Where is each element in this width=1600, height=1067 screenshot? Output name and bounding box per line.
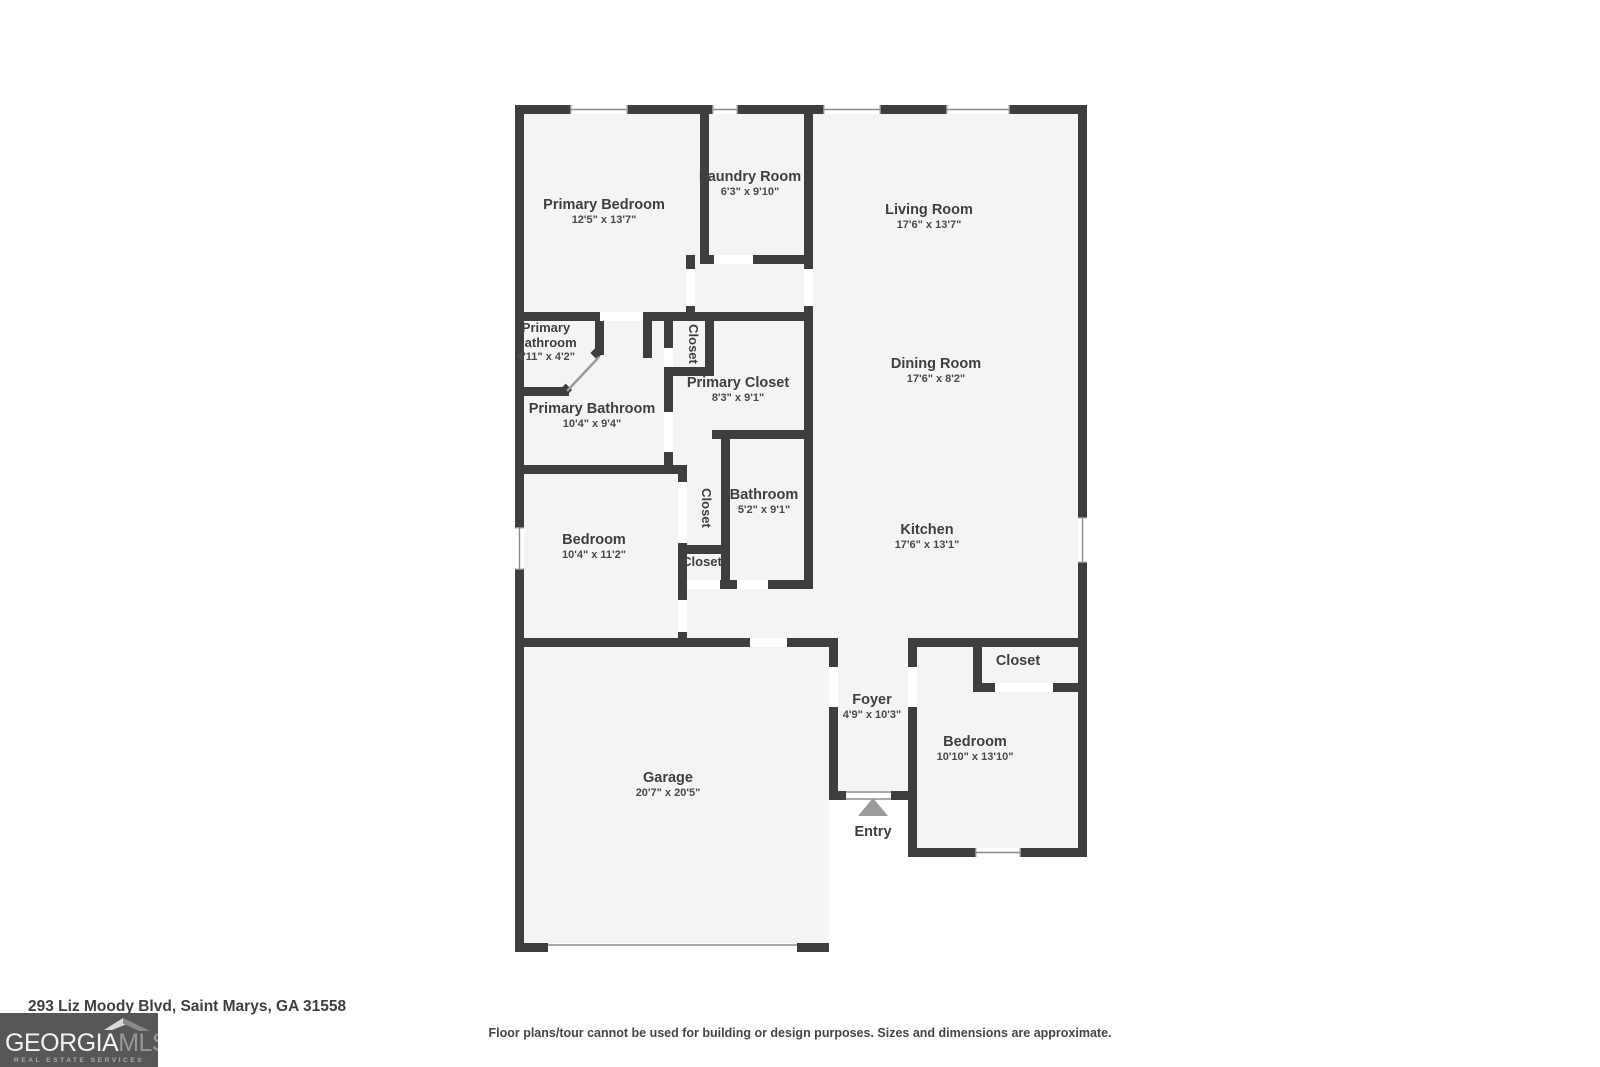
- logo-word-mls: MLS: [118, 1029, 158, 1057]
- entry-arrow-icon: [858, 798, 888, 816]
- room-name: Primary Bathroom: [529, 401, 656, 417]
- garage-door-opening: [548, 943, 797, 952]
- room-dims: 4'9" x 10'3": [843, 709, 901, 721]
- georgia-mls-logo: GEORGIAMLS REAL ESTATE SERVICES: [0, 1013, 158, 1067]
- room-name: Laundry Room: [699, 169, 801, 185]
- room-name: Primary Bedroom: [543, 197, 665, 213]
- room-label-bedroom-left: Bedroom 10'4" x 11'2": [562, 532, 626, 561]
- room-name: Living Room: [885, 202, 973, 218]
- room-dims: 17'6" x 8'2": [907, 373, 965, 385]
- room-name: Dining Room: [891, 356, 981, 372]
- logo-tagline: REAL ESTATE SERVICES: [14, 1057, 144, 1064]
- window-icon: [570, 105, 628, 114]
- room-label-bathroom: Bathroom 5'2" x 9'1": [730, 487, 798, 516]
- room-label-closet-small: Closet: [682, 554, 722, 569]
- room-label-kitchen: Kitchen 17'6" x 13'1": [895, 522, 960, 551]
- room-name: Bedroom: [562, 532, 626, 548]
- room-name: Closet: [686, 324, 701, 364]
- floor-plan-page: Primary Bedroom 12'5" x 13'7" Laundry Ro…: [0, 0, 1600, 1067]
- room-dims: 10'4" x 11'2": [562, 549, 626, 561]
- room-dims: 8'3" x 9'1": [712, 392, 764, 404]
- window-icon: [712, 105, 738, 114]
- floor-plan: Primary Bedroom 12'5" x 13'7" Laundry Ro…: [0, 0, 1600, 1067]
- window-icon: [823, 105, 881, 114]
- room-label-closet-mid: Closet: [699, 488, 714, 528]
- window-icon: [946, 105, 1010, 114]
- room-label-closet-bedroom2: Closet: [996, 653, 1040, 669]
- room-dims: 20'7" x 20'5": [636, 787, 701, 799]
- room-dims: 10'4" x 9'4": [563, 418, 621, 430]
- entry-label: Entry: [854, 824, 891, 840]
- room-label-closet-top: Closet: [686, 324, 701, 364]
- logo-word-georgia: GEORGIA: [5, 1029, 119, 1057]
- entry-marker: Entry: [854, 798, 891, 840]
- disclaimer-text: Floor plans/tour cannot be used for buil…: [0, 1026, 1600, 1040]
- room-name: Closet: [996, 653, 1040, 669]
- room-name: Bedroom: [943, 734, 1007, 750]
- svg-text:GEORGIAMLS: GEORGIAMLS: [5, 1029, 158, 1057]
- window-icon: [1078, 517, 1087, 563]
- room-label-garage: Garage 20'7" x 20'5": [636, 770, 701, 799]
- room-name: Closet: [682, 554, 722, 569]
- room-name: Bathroom: [730, 487, 798, 503]
- room-label-bedroom-right: Bedroom 10'10" x 13'10": [937, 734, 1014, 763]
- floor-areas: [515, 105, 1087, 952]
- room-label-living-room: Living Room 17'6" x 13'7": [885, 202, 973, 231]
- room-name: Primary Closet: [687, 375, 790, 391]
- room-dims: 10'10" x 13'10": [937, 751, 1014, 763]
- room-dims: 17'6" x 13'7": [897, 219, 962, 231]
- room-dims: 4'11" x 4'2": [517, 351, 575, 363]
- room-name: Primary: [522, 320, 571, 335]
- room-name: Foyer: [852, 692, 892, 708]
- georgia-mls-logo-art: GEORGIAMLS REAL ESTATE SERVICES: [0, 1013, 158, 1067]
- room-dims: 17'6" x 13'1": [895, 539, 960, 551]
- window-icon: [515, 527, 524, 570]
- room-label-primary-bathroom-small: Primary Bathroom 4'11" x 4'2": [515, 320, 576, 363]
- room-name: Kitchen: [900, 522, 953, 538]
- room-name: Closet: [699, 488, 714, 528]
- room-name: Bathroom: [515, 335, 576, 350]
- room-dims: 5'2" x 9'1": [738, 504, 790, 516]
- room-dims: 6'3" x 9'10": [721, 186, 779, 198]
- room-name: Garage: [643, 770, 693, 786]
- room-dims: 12'5" x 13'7": [572, 214, 637, 226]
- window-icon: [975, 848, 1021, 857]
